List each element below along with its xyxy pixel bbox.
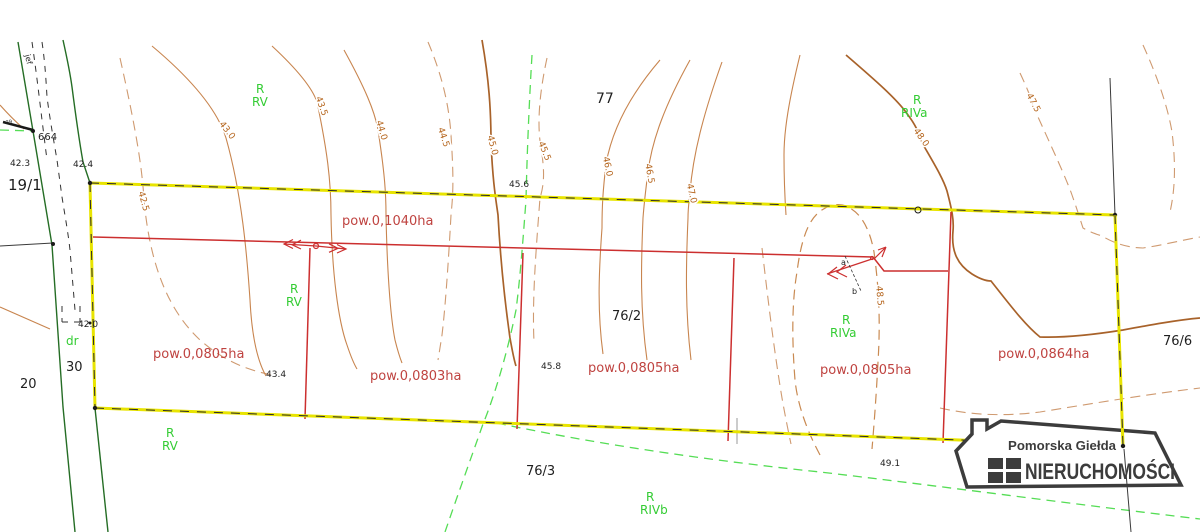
contour-label-44-5: 44.5 [435, 126, 451, 148]
area-label-3: pow.0,0805ha [588, 361, 679, 376]
spot-height-42-3: 42.3 [10, 159, 30, 169]
land-use-riva-1: RIVa [901, 106, 928, 120]
area-label-5: pow.0,0864ha [998, 347, 1089, 362]
land-use-dr: dr [66, 334, 79, 348]
contour-label-42-5: 42.5 [136, 191, 151, 213]
contour-label-45-5: 45.5 [535, 140, 552, 162]
boundary-nodes [31, 129, 1117, 410]
parcel-number-30: 30 [66, 360, 83, 375]
area-label-top: pow.0,1040ha [342, 214, 433, 229]
spot-height-49-1: 49.1 [880, 459, 900, 469]
spot-height-664: 664 [38, 132, 57, 143]
contour-label-43-0: 43.0 [216, 120, 236, 142]
spot-height-42-0: 42.0 [78, 320, 98, 330]
contour-label-44-0: 44.0 [373, 119, 389, 141]
spot-height-43-4: 43.4 [266, 370, 286, 380]
contour-label-43-5: 43.5 [313, 95, 329, 117]
land-use-r-1: R [256, 82, 264, 96]
cadastral-map-svg: 42.5 43.0 43.5 44.0 44.5 45.0 45.5 46.0 … [0, 0, 1200, 532]
spot-height-45-6: 45.6 [509, 180, 529, 190]
contour-label-48-0: 48.0 [911, 127, 931, 149]
contour-label-47-5: 47.5 [1024, 92, 1042, 114]
annotation-jef: jef [23, 52, 35, 65]
cadastral-map: 42.5 43.0 43.5 44.0 44.5 45.0 45.5 46.0 … [0, 0, 1200, 532]
spot-heights: 664 42.3 42.4 42.0 45.6 45.8 43.4 49.1 a… [5, 52, 900, 469]
parcel-number-19-1: 19/1 [8, 176, 42, 194]
parcel-number-77: 77 [596, 91, 614, 107]
land-use-riva-2: RIVa [830, 326, 857, 340]
contour-label-48-5: 48.5 [873, 285, 885, 306]
logo-text-line1: Pomorska Giełda [1008, 438, 1117, 453]
land-use-r-2: R [290, 282, 298, 296]
contour-label-46-0: 46.0 [600, 156, 614, 178]
land-use-rv-3: RV [162, 439, 179, 453]
land-use-rv-1: RV [252, 95, 269, 109]
area-label-1: pow.0,0805ha [153, 347, 244, 362]
land-use-rv-2: RV [286, 295, 303, 309]
land-use-r-5: R [842, 313, 850, 327]
land-use-r-3: R [166, 426, 174, 440]
logo-text-line2: NIERUCHOMOŚCI [1025, 459, 1175, 484]
parcel-number-20: 20 [20, 377, 37, 392]
parcel-division-lines [93, 212, 951, 443]
agency-logo: Pomorska Giełda NIERUCHOMOŚCI [956, 420, 1181, 487]
spot-height-45-8: 45.8 [541, 362, 561, 372]
area-label-4: pow.0,0805ha [820, 363, 911, 378]
parcel-number-76-2: 76/2 [612, 309, 641, 324]
contour-label-46-5: 46.5 [642, 163, 655, 184]
annotation-29: 29 [5, 119, 12, 126]
land-use-r-4: R [913, 93, 921, 107]
land-use-rivb: RIVb [640, 503, 668, 517]
parcel-number-76-6: 76/6 [1163, 334, 1192, 349]
annotation-b: b [852, 287, 857, 296]
contour-label-45-0: 45.0 [485, 135, 500, 157]
area-label-2: pow.0,0803ha [370, 369, 461, 384]
annotation-a: a [841, 258, 846, 267]
spot-height-42-4: 42.4 [73, 160, 93, 170]
parcel-boundary-yellow [90, 183, 1123, 446]
parcel-number-76-3: 76/3 [526, 464, 555, 479]
land-use-r-6: R [646, 490, 654, 504]
